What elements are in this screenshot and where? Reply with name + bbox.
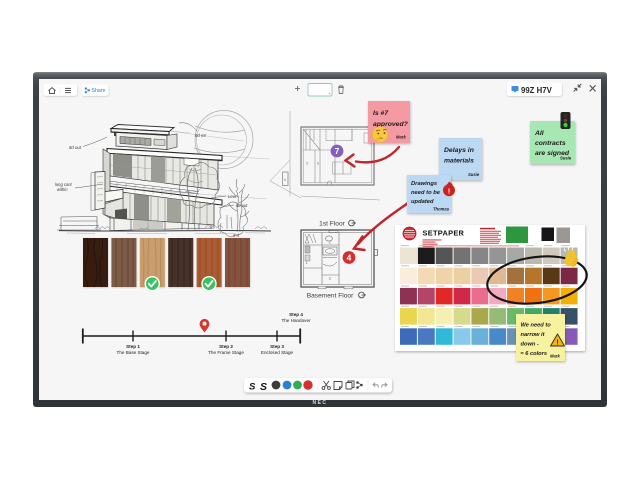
svg-text:Mark: Mark: [550, 354, 560, 359]
svg-text:S: S: [249, 382, 256, 393]
svg-text:5: 5: [306, 161, 309, 166]
svg-text:updated: updated: [411, 199, 434, 205]
svg-text:Susie: Susie: [468, 172, 480, 177]
svg-text:!: !: [448, 186, 451, 195]
svg-text:Step 3: Step 3: [270, 344, 284, 349]
svg-text:1st Floor: 1st Floor: [319, 221, 345, 228]
svg-text:6d out: 6d out: [236, 203, 248, 208]
svg-text:6d mt: 6d mt: [195, 133, 207, 138]
svg-text:All: All: [534, 130, 544, 137]
svg-text:The Base Stage: The Base Stage: [117, 350, 150, 355]
svg-text:Step 1: Step 1: [126, 344, 140, 349]
svg-text:Susie: Susie: [560, 156, 572, 161]
svg-text:Is #7: Is #7: [373, 110, 389, 117]
svg-text:contracts: contracts: [535, 140, 566, 147]
svg-text:6d out: 6d out: [69, 145, 82, 150]
svg-text:narrow it: narrow it: [521, 332, 546, 338]
svg-text:Delays in: Delays in: [444, 147, 474, 154]
svg-text:Share: Share: [92, 88, 106, 94]
svg-text:Drawings: Drawings: [411, 181, 438, 187]
svg-text:down -: down -: [521, 342, 539, 348]
svg-text:4: 4: [347, 253, 352, 263]
svg-text:The Frame Stage: The Frame Stage: [208, 350, 244, 355]
svg-text:The Handover: The Handover: [281, 318, 311, 323]
svg-text:S: S: [260, 381, 267, 393]
svg-text:6: 6: [317, 161, 320, 166]
svg-text:need to be: need to be: [411, 190, 441, 196]
svg-text:within: within: [57, 187, 68, 192]
svg-text:≈ 6 colors: ≈ 6 colors: [521, 351, 548, 357]
svg-text:99Z H7V: 99Z H7V: [521, 86, 553, 95]
svg-text:SETPAPER: SETPAPER: [423, 229, 465, 238]
svg-text:We need to: We need to: [521, 323, 552, 329]
svg-text:2: 2: [329, 240, 332, 245]
svg-text:d-d: d-d: [233, 233, 240, 238]
svg-text:7: 7: [335, 146, 340, 156]
svg-text:Step 2: Step 2: [219, 344, 233, 349]
svg-text:Enclosed Stage: Enclosed Stage: [261, 350, 294, 355]
svg-text:6: 6: [284, 178, 286, 182]
svg-text:Thomas: Thomas: [433, 207, 450, 212]
svg-text:Basement Floor: Basement Floor: [307, 293, 354, 300]
svg-text:materials: materials: [444, 158, 474, 165]
svg-text:Mark: Mark: [396, 135, 406, 140]
svg-text:!: !: [556, 340, 558, 347]
svg-text:Step 4: Step 4: [289, 312, 303, 317]
svg-text:3: 3: [329, 276, 332, 281]
svg-text:Lmu: Lmu: [228, 194, 237, 199]
